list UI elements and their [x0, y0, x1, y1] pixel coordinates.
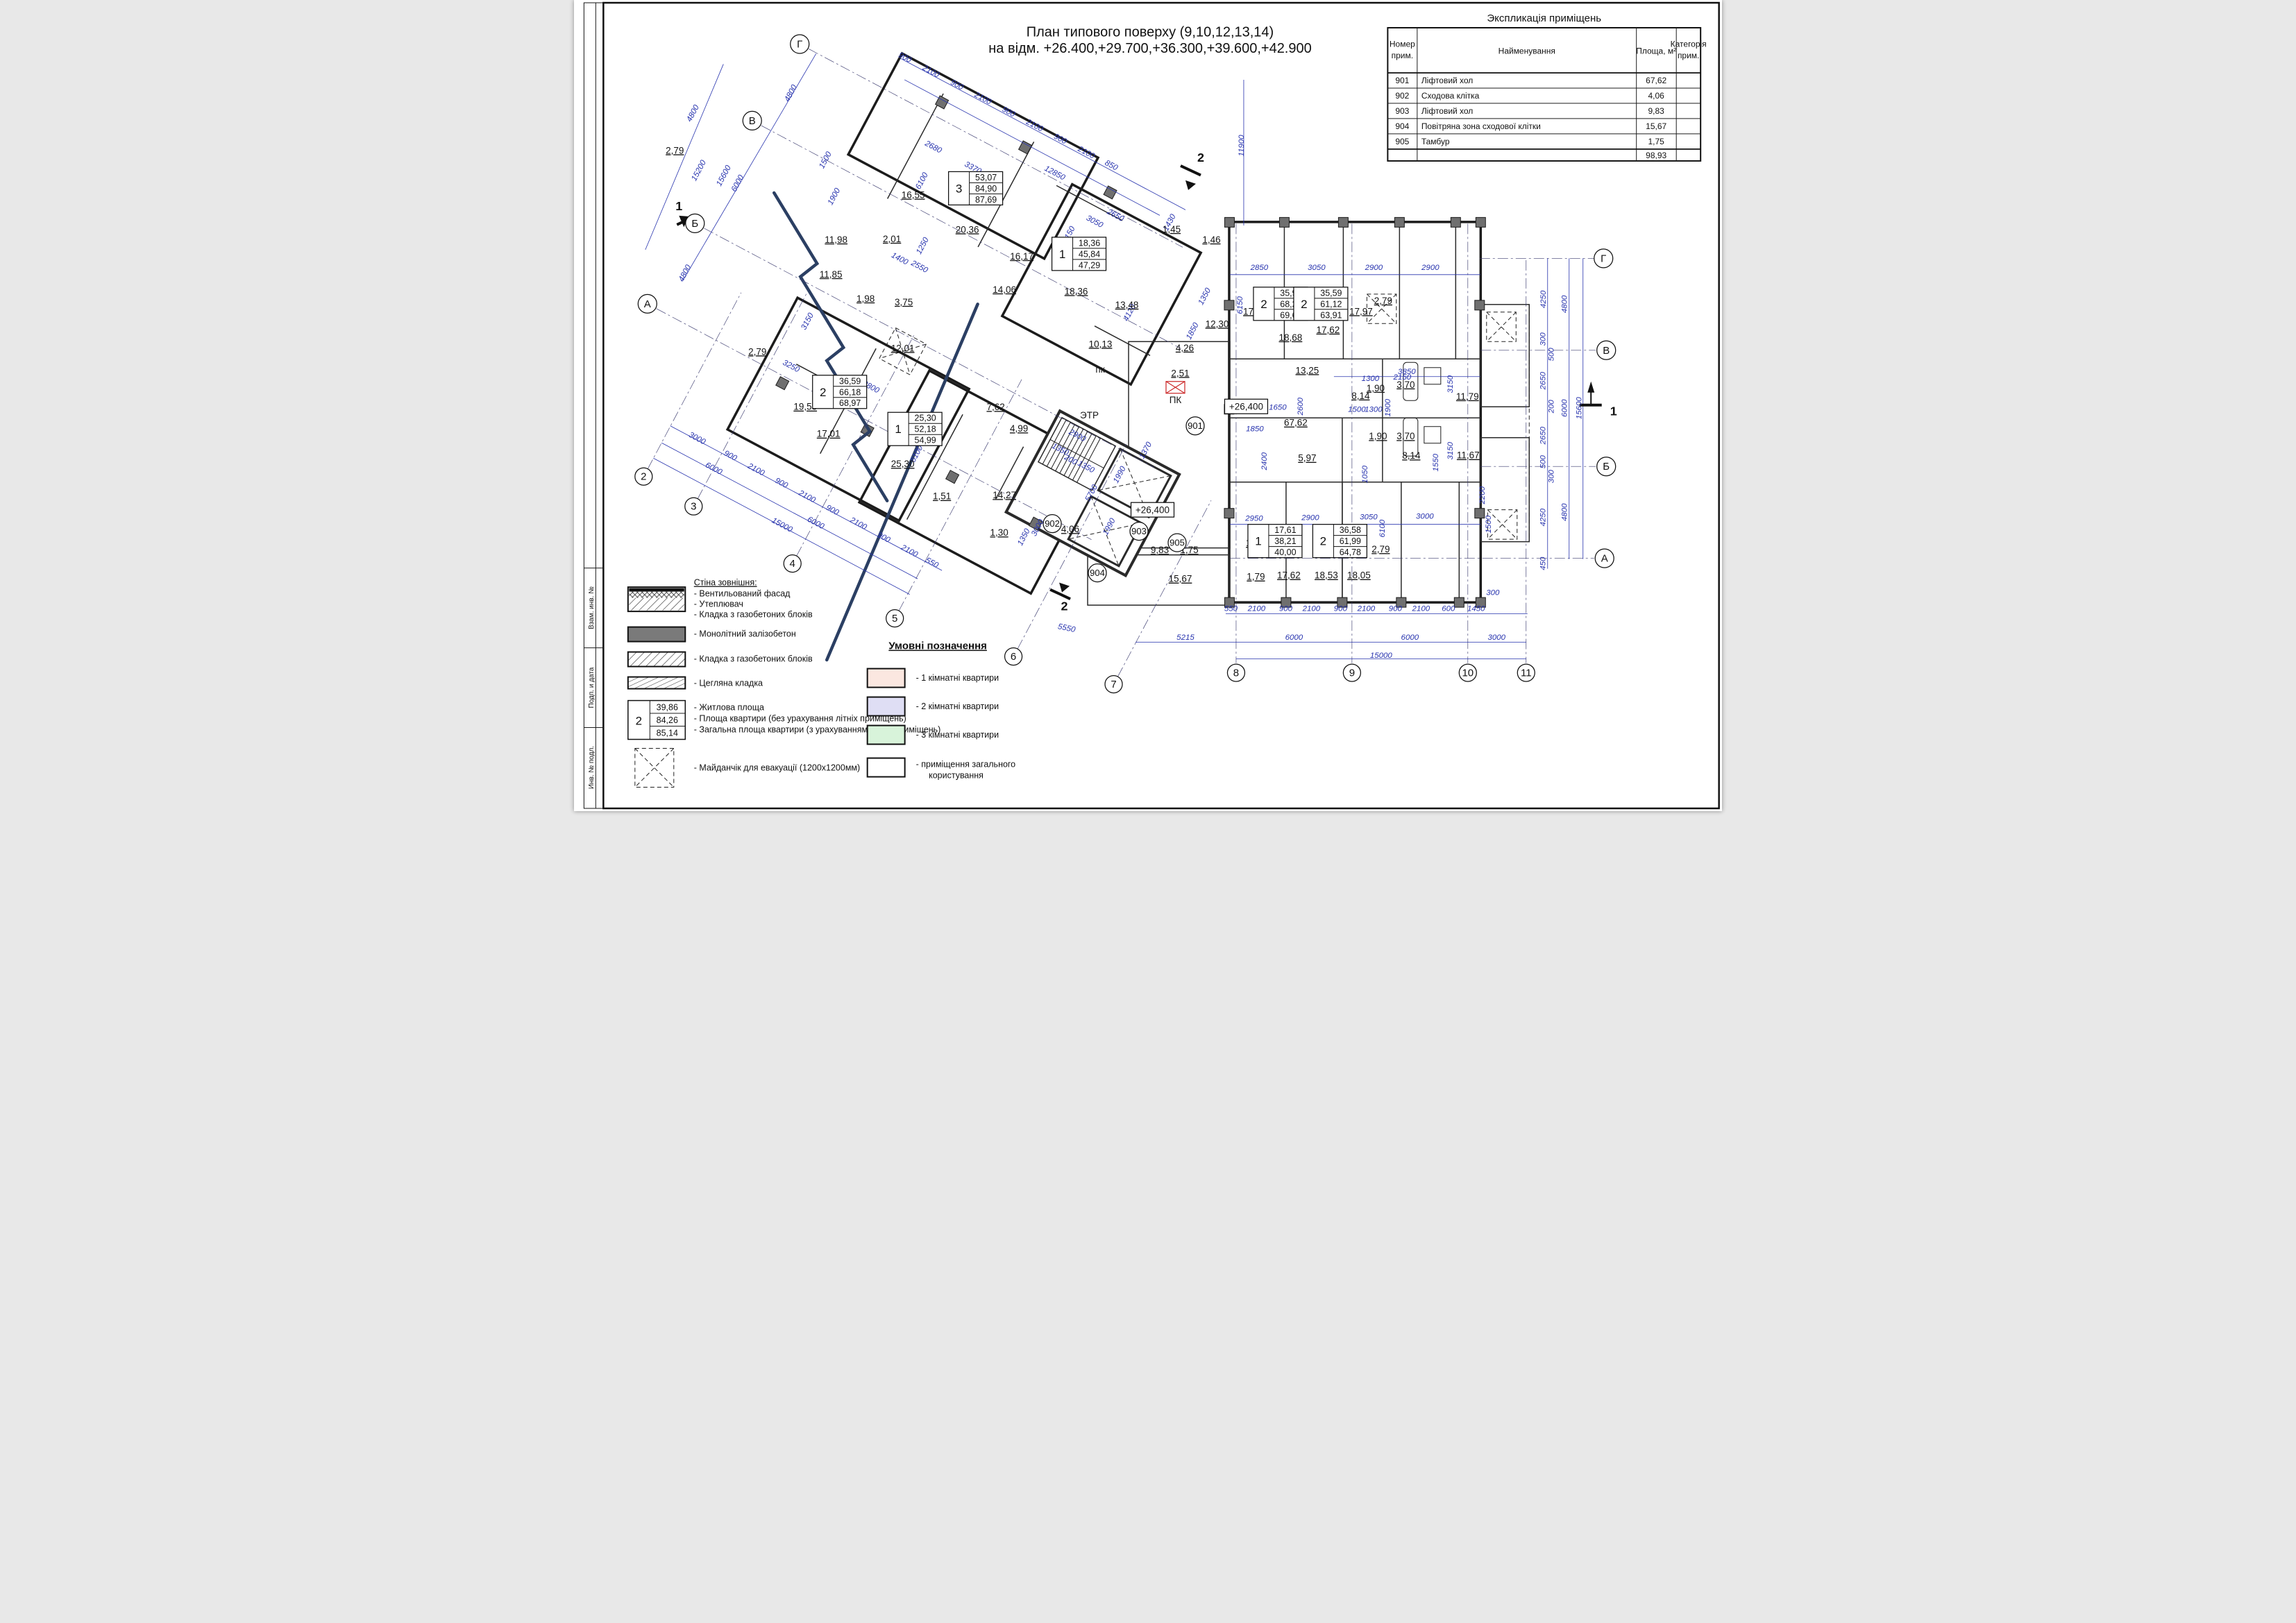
dimension-label: 2200 — [1478, 486, 1487, 504]
grid-bubble-label: 8 — [1233, 668, 1239, 679]
apartment-living-area: 36,59 — [839, 376, 861, 386]
symbols-legend-title: Умовні позначення — [888, 640, 987, 652]
grid-bubble-label: 4 — [790, 558, 795, 570]
dimension-label: 450 — [1539, 556, 1548, 570]
svg-text:39,86: 39,86 — [657, 703, 678, 713]
svg-text:2: 2 — [636, 715, 642, 728]
dimension-label: 2400 — [1260, 452, 1269, 470]
room-area-label: 14,06 — [993, 284, 1016, 295]
room-area-label: 12,30 — [1206, 318, 1229, 329]
table-row-area: 67,62 — [1646, 76, 1666, 85]
apartment-area: 38,21 — [1274, 536, 1296, 546]
room-area-label: 11,67 — [1457, 450, 1480, 461]
dimension-label: 3000 — [1416, 513, 1434, 521]
dimension-label: 6000 — [1285, 634, 1303, 642]
room-number-label: 902 — [1045, 518, 1060, 529]
room-area-label: 4,06 — [1061, 524, 1079, 534]
table-row-number: 904 — [1395, 121, 1409, 131]
dimension-label: 4800 — [677, 263, 693, 283]
dimension-label: 2650 — [1539, 371, 1548, 390]
room-area-label: 14,27 — [993, 490, 1016, 500]
elevation-mark: +26,400 — [1136, 505, 1170, 516]
dimension-label: 2100 — [1024, 118, 1045, 134]
room-number-label: 903 — [1131, 526, 1147, 536]
table-total-area: 98,93 — [1646, 151, 1666, 160]
dimension-label: 3150 — [1446, 441, 1455, 459]
room-area-label: 2,51 — [1171, 368, 1189, 378]
wall-legend-item: - Вентильований фасад — [694, 589, 791, 599]
room-area-label: 18,36 — [1065, 286, 1088, 296]
explication-table: Экспликація приміщень Номер прим. Наймен… — [1387, 12, 1706, 161]
room-area-label: 18,68 — [1279, 332, 1303, 343]
dimension-label: 1500 — [1348, 406, 1366, 414]
apartment-total-area: 64,78 — [1340, 547, 1361, 557]
dimension-label: 3000 — [1488, 634, 1506, 642]
dimension-label: 1300 — [1362, 375, 1380, 383]
apartment-type: 2 — [1301, 298, 1307, 311]
room-number-label: 905 — [1170, 538, 1185, 548]
dimension-label: 4800 — [1561, 503, 1569, 521]
dimension-label: 2950 — [1244, 515, 1263, 523]
room-area-label: 1,98 — [856, 294, 875, 304]
room-area-label: 13,25 — [1296, 365, 1319, 375]
col-header-category: Категорія — [1671, 39, 1707, 49]
room-area-label: 4,26 — [1176, 343, 1194, 353]
dimension-label: 15200 — [690, 159, 708, 182]
room-area-label: 3,75 — [895, 297, 913, 307]
legend-2room-swatch — [868, 697, 905, 716]
dimension-label: 1250 — [915, 236, 931, 256]
dimension-label: 1550 — [1432, 453, 1440, 471]
room-area-label: 3,70 — [1396, 380, 1415, 390]
room-area-label: 2,79 — [748, 346, 766, 357]
dimension-label: 2100 — [1302, 605, 1321, 613]
room-area-label: 1,46 — [1202, 235, 1220, 245]
apartment-area: 45,84 — [1079, 249, 1100, 259]
dimension-label: 1500 — [1485, 515, 1493, 533]
area-legend-item: - Житлова площа — [694, 703, 764, 713]
table-row-name: Сходова клітка — [1421, 91, 1480, 101]
evac-label: - Майданчік для евакуації (1200х1200мм) — [694, 763, 860, 773]
legend-3room-swatch — [868, 726, 905, 745]
apartment-spec-box: 235,5961,1263,91 — [1294, 287, 1348, 321]
section-mark-label: 1 — [1610, 405, 1617, 418]
dimension-label: 1850 — [1185, 321, 1201, 341]
apartment-total-area: 54,99 — [915, 436, 936, 445]
room-area-label: 12,01 — [891, 343, 915, 353]
dimension-label: 300 — [1548, 470, 1556, 484]
dimension-label: 1350 — [1016, 527, 1032, 547]
apartment-total-area: 40,00 — [1274, 547, 1296, 557]
grid-bubble-label: 6 — [1011, 651, 1016, 663]
dimension-label: 300 — [1486, 589, 1500, 597]
dimension-label: 500 — [1548, 348, 1556, 362]
room-area-label: 4,99 — [1010, 423, 1028, 434]
dimension-label: 3050 — [1360, 513, 1378, 522]
col-header-number: Номер — [1390, 39, 1415, 49]
apartment-spec-box: 125,3052,1854,99 — [888, 412, 942, 445]
room-area-label: 17,62 — [1277, 570, 1301, 581]
dimension-label: 15000 — [770, 516, 794, 534]
dimension-label: 600 — [1442, 605, 1455, 613]
room-area-label: 25,30 — [891, 459, 915, 469]
room-area-label: 16,55 — [902, 189, 925, 200]
dimension-label: 6000 — [1561, 399, 1569, 417]
frame-label: Подп. и дата — [588, 667, 596, 708]
svg-text:85,14: 85,14 — [657, 729, 678, 738]
room-area-label: 1,90 — [1369, 431, 1387, 441]
table-row-number: 905 — [1395, 137, 1409, 146]
monolith-label: - Монолітний залізобетон — [694, 629, 796, 639]
room-area-label: 11,85 — [820, 269, 843, 280]
apartment-type: 2 — [1320, 535, 1326, 548]
dimension-label: 3150 — [800, 312, 816, 332]
dimension-label: 1450 — [1467, 605, 1485, 613]
apartment-type: 1 — [1255, 535, 1261, 548]
legend-1room-label: - 1 кімнатні квартири — [916, 673, 999, 683]
room-area-label: 18,53 — [1315, 570, 1338, 581]
apartment-living-area: 18,36 — [1079, 238, 1100, 248]
apartment-total-area: 87,69 — [975, 195, 997, 205]
dimension-label: 2650 — [1539, 426, 1548, 445]
evac-swatch — [635, 749, 674, 788]
dimension-label: 900 — [1334, 605, 1348, 613]
dimension-label: 2850 — [1250, 264, 1269, 272]
apartment-living-area: 53,07 — [975, 173, 997, 182]
room-area-label: 17,97 — [1349, 306, 1373, 316]
table-row-area: 9,83 — [1648, 106, 1665, 116]
grid-bubble-label: 9 — [1349, 668, 1355, 679]
apartment-type: 2 — [820, 386, 826, 399]
dimension-label: 4800 — [1561, 295, 1569, 313]
dimension-label: 2600 — [1297, 397, 1305, 416]
grid-bubble-label: 11 — [1521, 668, 1532, 679]
apartment-type: 3 — [956, 182, 962, 195]
col-header-name: Найменування — [1499, 46, 1555, 56]
symbols-legend: Умовні позначення - 1 кімнатні квартири … — [868, 640, 1016, 781]
plan-title-line2: на відм. +26.400,+29.700,+36.300,+39.600… — [988, 41, 1311, 56]
svg-text:користування: користування — [929, 771, 984, 781]
apartment-spec-box: 236,5966,1868,97 — [813, 375, 867, 409]
room-area-label: 2,79 — [1371, 544, 1390, 554]
legend-common-label: - приміщення загального — [916, 760, 1016, 770]
room-area-label: 18,05 — [1347, 570, 1371, 581]
wall-swatch — [628, 587, 685, 611]
dimension-label: 2100 — [1076, 144, 1097, 160]
dimension-label: 1900 — [827, 187, 843, 207]
apartment-type: 1 — [895, 423, 901, 436]
wall-legend-title: Стіна зовнішня: — [694, 578, 757, 588]
room-area-label: 10,13 — [1089, 339, 1113, 349]
dimension-label: 6000 — [1401, 634, 1419, 642]
dimension-label: 1350 — [1197, 287, 1213, 307]
dimension-label: 1300 — [1365, 406, 1383, 414]
dimension-label: 900 — [1279, 605, 1293, 613]
grid-bubble-label: А — [644, 298, 651, 310]
dimension-label: 1850 — [1246, 425, 1264, 434]
dimension-label: 2100 — [1357, 605, 1376, 613]
table-row-name: Повітряна зона сходової клітки — [1421, 121, 1541, 131]
room-area-label: 5,97 — [1298, 453, 1316, 464]
room-area-label: 7,62 — [986, 402, 1004, 412]
grid-bubble-label: А — [1601, 553, 1608, 565]
dimension-label: 1900 — [1384, 398, 1392, 416]
dimension-label: 1500 — [818, 150, 834, 170]
drawing-sheet: 9002100900210090021009002100850128504800… — [574, 0, 1722, 811]
plan-title-line1: План типового поверху (9,10,12,13,14) — [1027, 24, 1274, 40]
table-row-number: 902 — [1395, 91, 1409, 101]
apartment-total-area: 68,97 — [839, 398, 861, 408]
apartment-type: 2 — [1260, 298, 1267, 311]
room-area-label: 1,90 — [1367, 383, 1385, 393]
loggia-top — [1480, 305, 1529, 407]
dimension-label: 3250 — [782, 359, 802, 375]
grid-bubble-label: 3 — [691, 501, 696, 513]
table-row-name: Тамбур — [1421, 137, 1450, 146]
apartment-spec-box: 117,6138,2140,00 — [1248, 525, 1302, 558]
dimension-label: 15600 — [1576, 397, 1584, 420]
room-area-label: 15,67 — [1169, 574, 1192, 584]
dimension-label: 4800 — [783, 83, 799, 103]
apartment-area: 84,90 — [975, 184, 997, 194]
room-area-label: 13,48 — [1115, 300, 1139, 310]
apartment-living-area: 17,61 — [1274, 525, 1296, 535]
room-area-label: 1,51 — [933, 491, 951, 502]
room-area-label: 20,36 — [956, 224, 979, 235]
room-area-label: 1,79 — [1247, 572, 1265, 582]
dimension-label: 15600 — [715, 164, 733, 187]
room-area-label: 2,79 — [1374, 296, 1392, 306]
svg-text:прим.: прим. — [1678, 51, 1699, 60]
apartment-type: 1 — [1059, 248, 1065, 261]
section-mark-label: 2 — [1061, 600, 1068, 613]
apartment-living-area: 25,30 — [915, 414, 936, 423]
apartment-spec-box: 236,5861,9964,78 — [1312, 525, 1367, 558]
dimension-label: 11900 — [1238, 135, 1246, 157]
grid-bubble-label: 5 — [892, 613, 897, 624]
dimension-label: 1050 — [1361, 465, 1369, 483]
room-area-label: 3,70 — [1396, 431, 1415, 441]
apartment-spec-box: 353,0784,9087,69 — [949, 171, 1003, 205]
dimension-label: 900 — [897, 51, 913, 65]
room-area-label: 8,14 — [1402, 450, 1421, 461]
room-area-label: 2,01 — [883, 234, 901, 244]
table-row-number: 903 — [1395, 106, 1409, 116]
grid-bubble-label: 7 — [1111, 679, 1116, 690]
dimension-label: 2550 — [909, 259, 930, 275]
table-row-area: 15,67 — [1646, 121, 1666, 131]
dimension-label: 500 — [1539, 455, 1548, 469]
apartment-area: 61,99 — [1340, 536, 1361, 546]
pk-symbol — [1166, 382, 1185, 393]
room-area-label: 17,62 — [1317, 325, 1340, 335]
blocks-label: - Кладка з газобетоних блоків — [694, 654, 813, 664]
dimension-label: 5215 — [1176, 634, 1195, 642]
room-number-label: 901 — [1188, 420, 1203, 431]
frame-label: Взам. инв. № — [588, 586, 596, 629]
apartment-living-area: 35,59 — [1320, 288, 1342, 298]
dimension-label: 2100 — [920, 64, 941, 80]
dimension-label: 6100 — [914, 171, 930, 191]
table-row-number: 901 — [1395, 76, 1409, 85]
elevation-mark: +26,400 — [1229, 402, 1263, 412]
section-mark-label: 2 — [1197, 151, 1204, 164]
room-area-label: 1,45 — [1163, 224, 1181, 235]
room-area-label: 16,17 — [1010, 251, 1033, 262]
brick-label: - Цегляна кладка — [694, 679, 763, 688]
room-area-label: 1,30 — [990, 527, 1008, 538]
dimension-label: 300 — [1539, 332, 1548, 346]
room-number-label: 904 — [1090, 568, 1105, 578]
dimension-label: 4250 — [1539, 508, 1548, 526]
room-area-label: 2,79 — [666, 145, 684, 155]
grid-bubble-label: Б — [691, 218, 698, 230]
dimension-label: 1650 — [1269, 404, 1287, 412]
table-title: Экспликація приміщень — [1487, 12, 1601, 24]
section-trace-lines — [774, 193, 977, 660]
grid-bubble-label: 10 — [1462, 668, 1474, 679]
dimension-label: 550 — [1224, 605, 1238, 613]
dimension-label: 2900 — [1421, 264, 1440, 272]
monolith-swatch — [628, 627, 685, 642]
wall-legend-item: - Утеплювач — [694, 600, 743, 609]
apartment-living-area: 36,58 — [1340, 525, 1361, 535]
svg-text:84,26: 84,26 — [657, 715, 678, 725]
blocks-swatch — [628, 652, 685, 667]
grid-bubble-label: Г — [797, 38, 802, 50]
section-mark-label: 1 — [675, 199, 682, 213]
dimension-label: 6000 — [806, 516, 826, 532]
table-row-name: Ліфтовий хол — [1421, 106, 1473, 116]
dimension-label: 3050 — [1085, 214, 1105, 230]
apartment-area: 61,12 — [1320, 299, 1342, 309]
dimension-label: 6100 — [1378, 519, 1387, 537]
dimension-label: 2680 — [923, 139, 944, 155]
wall-legend-item: - Кладка з газобетоних блоків — [694, 610, 813, 620]
room-area-label: ЭТР — [1080, 410, 1099, 420]
dimension-label: 6000 — [730, 173, 746, 194]
legend-2room-label: - 2 кімнатні квартири — [916, 702, 999, 711]
grid-bubble-label: Г — [1601, 253, 1606, 264]
dimension-label: 2900 — [1301, 514, 1319, 522]
table-row-area: 1,75 — [1648, 137, 1665, 146]
grid-bubble-label: В — [1603, 345, 1610, 357]
room-area-label: 17,01 — [817, 429, 841, 439]
brick-swatch — [628, 677, 685, 689]
dimension-label: 4250 — [1539, 290, 1548, 308]
dimension-label: 2100 — [1247, 605, 1266, 613]
legend-common-swatch — [868, 758, 905, 777]
dimension-label: 2100 — [1412, 605, 1430, 613]
floor-plan-canvas: 9002100900210090021009002100850128504800… — [574, 0, 1722, 811]
room-area-label: пк — [1095, 364, 1104, 375]
dimension-label: 3050 — [1308, 264, 1326, 272]
room-area-label: 67,62 — [1284, 418, 1308, 428]
room-area-label: 9,83 — [1151, 545, 1169, 555]
dimension-label: 2900 — [1365, 264, 1383, 272]
dimension-label: 5550 — [1057, 622, 1077, 634]
apartment-total-area: 63,91 — [1320, 310, 1342, 320]
grid-bubble-label: 2 — [641, 471, 646, 483]
apartment-spec-box: 118,3645,8447,29 — [1052, 237, 1106, 271]
room-area-label: 11,79 — [1456, 391, 1479, 402]
frame-label: Инв. № подл. — [588, 746, 596, 789]
dimension-label: 1400 — [890, 251, 910, 267]
dimension-label: 200 — [1548, 400, 1556, 414]
dimension-label: 4800 — [685, 103, 701, 124]
apartment-area: 66,18 — [839, 387, 861, 397]
dimension-label: 3150 — [1446, 375, 1455, 393]
dimension-label: 1370 — [1138, 441, 1154, 461]
dimension-label: 3000 — [687, 431, 707, 447]
grid-bubble-label: Б — [1603, 461, 1610, 473]
svg-text:прим.: прим. — [1392, 51, 1413, 60]
room-area-label: 11,98 — [825, 235, 847, 245]
table-row-name: Ліфтовий хол — [1421, 76, 1473, 85]
room-area-label: ПК — [1170, 395, 1182, 405]
area-box-sample: 2 39,86 84,26 85,14 — [628, 701, 685, 740]
dimension-label: 15000 — [1370, 652, 1393, 660]
apartment-total-area: 47,29 — [1079, 260, 1100, 270]
grid-bubble-label: В — [749, 115, 756, 127]
dimension-label: 2100 — [972, 91, 993, 107]
legend-3room-label: - 3 кімнатні квартири — [916, 730, 999, 740]
dimension-label: 900 — [1389, 605, 1403, 613]
apartment-area: 52,18 — [915, 425, 936, 434]
table-row-area: 4,06 — [1648, 91, 1665, 101]
legend-1room-swatch — [868, 669, 905, 688]
